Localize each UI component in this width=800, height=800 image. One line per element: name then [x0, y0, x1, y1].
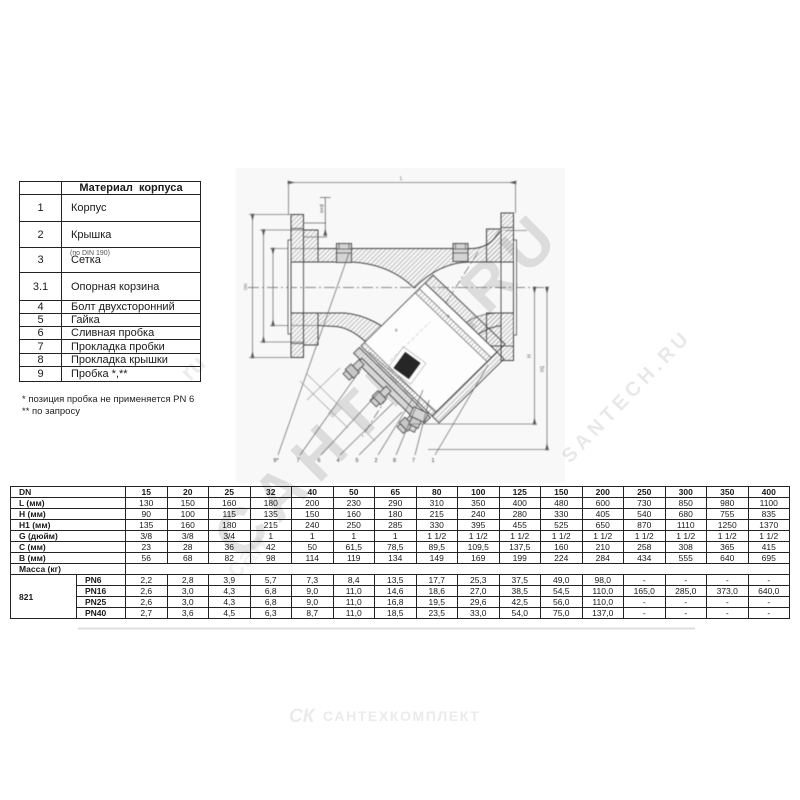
svg-text:7: 7 [296, 458, 299, 464]
svg-text:6: 6 [317, 458, 320, 464]
svg-text:SANTECH.RU: SANTECH.RU [558, 325, 696, 467]
svg-text:4: 4 [336, 458, 339, 464]
svg-text:8: 8 [393, 458, 396, 464]
svg-text:n×d: n×d [320, 204, 326, 213]
svg-text:DN: DN [243, 284, 248, 291]
svg-text:7: 7 [412, 458, 415, 464]
svg-text:САНТЕХКОМПЛЕКТ: САНТЕХКОМПЛЕКТ [323, 708, 480, 724]
svg-text:H1: H1 [540, 365, 546, 372]
svg-text:9*: 9* [273, 458, 279, 464]
svg-text:5: 5 [355, 458, 358, 464]
svg-text:2: 2 [374, 458, 377, 464]
svg-text:H: H [527, 354, 533, 358]
svg-text:L: L [400, 176, 403, 182]
svg-text:1: 1 [431, 458, 434, 464]
svg-text:СК: СК [289, 706, 316, 727]
